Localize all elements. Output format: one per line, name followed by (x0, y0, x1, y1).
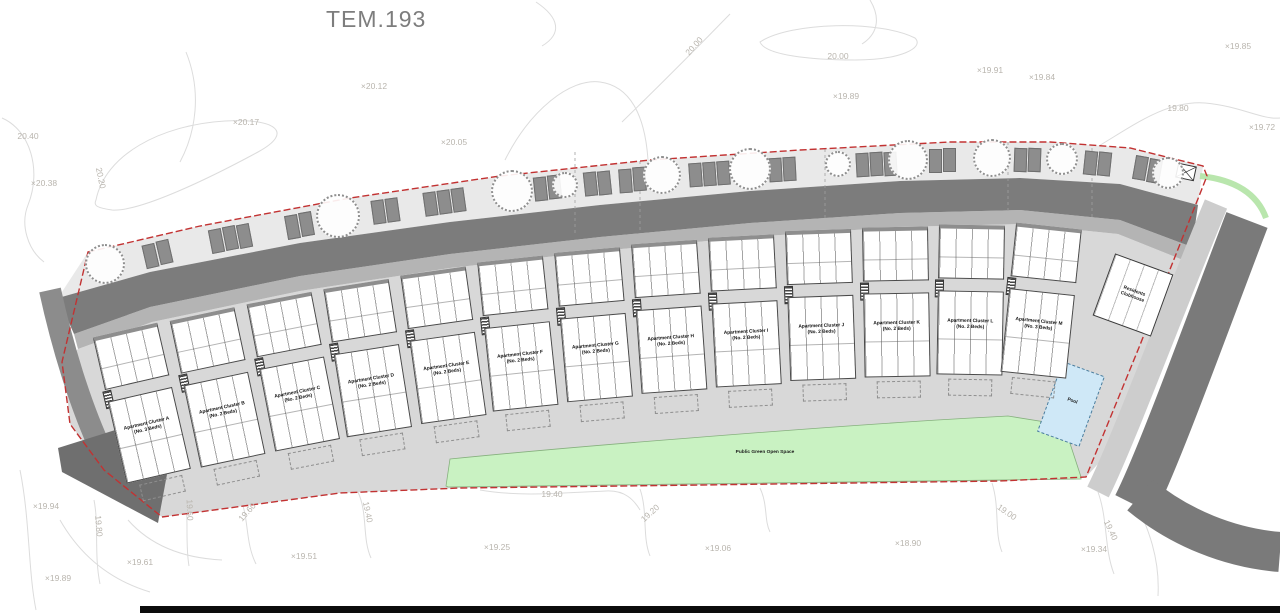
elevation-marker: ×19.94 (33, 501, 59, 511)
parking-bay (855, 153, 869, 178)
parking-bay (436, 189, 452, 215)
cluster-upper-block (631, 240, 701, 298)
parking-bay (702, 162, 717, 187)
parking-bay (1013, 148, 1027, 172)
parking-bay (1082, 150, 1097, 175)
cluster-upper-block (708, 234, 777, 291)
parking-court (1010, 377, 1056, 399)
tree-icon (973, 139, 1011, 177)
tree-icon (825, 151, 851, 177)
parking-bay (532, 176, 547, 201)
parking-bay (1027, 148, 1041, 172)
tree-icon (888, 140, 928, 180)
elevation-marker: ×19.89 (833, 91, 859, 101)
elevation-marker: ×20.05 (441, 137, 467, 147)
parking-court (580, 401, 625, 422)
tree-icon (316, 194, 360, 238)
cluster-upper-block (862, 226, 929, 281)
tree-icon (1152, 157, 1184, 189)
parking-bay (929, 149, 942, 173)
parking-bay (716, 161, 731, 186)
cluster-upper-block (247, 292, 322, 358)
cluster-lower-block (560, 313, 633, 402)
cluster-label: Apartment Cluster L(No. 2 Beds) (938, 318, 1002, 330)
elevation-marker: 20.20 (94, 167, 108, 190)
elevation-marker: 20.00 (827, 51, 848, 61)
elevation-marker: ×19.51 (291, 551, 317, 561)
elevation-marker: ×19.25 (484, 542, 510, 552)
elevation-marker: ×19.85 (1225, 41, 1251, 51)
cluster-lower-block (787, 295, 856, 381)
cluster-lower-block (484, 321, 558, 411)
parking-bay (688, 163, 703, 188)
tree-icon (85, 244, 125, 284)
elevation-marker: ×19.91 (977, 65, 1003, 75)
parking-court (948, 379, 992, 397)
parking-bay (596, 170, 611, 195)
cluster-upper-block (400, 266, 473, 329)
cluster-lower-block (863, 292, 930, 377)
parking-court (654, 394, 699, 414)
cluster-upper-block (477, 256, 548, 317)
elevation-marker: ×19.34 (1081, 544, 1107, 554)
elevation-marker: ×20.17 (233, 117, 259, 127)
elevation-marker: 19.60 (185, 499, 196, 521)
parking-bay (384, 197, 400, 223)
elevation-marker: ×19.84 (1029, 72, 1055, 82)
bottom-bar (140, 606, 1280, 613)
clubhouse-label: Residents Clubhouse (1119, 285, 1146, 304)
tree-icon (729, 148, 771, 190)
parking-bay (582, 171, 597, 196)
parking-bay (1096, 151, 1111, 176)
elevation-marker: 19.00 (995, 502, 1018, 522)
parking-bay (782, 157, 796, 182)
tree-icon (491, 170, 533, 212)
elevation-marker: ×20.38 (31, 178, 57, 188)
cluster-upper-block (938, 224, 1005, 279)
cluster-lower-block (1001, 288, 1075, 378)
elevation-marker: 20.40 (17, 131, 38, 141)
parking-court (728, 389, 773, 408)
parking-bay (618, 169, 633, 194)
elevation-marker: 19.80 (93, 515, 105, 537)
parking-bay (943, 148, 956, 172)
parking-bay (450, 187, 466, 213)
parking-bay (422, 191, 438, 217)
elevation-marker: 20.00 (683, 35, 705, 58)
elevation-marker: ×19.06 (705, 543, 731, 553)
parking-bay (370, 199, 386, 225)
cluster-lower-block (711, 300, 781, 387)
elevation-marker: ×19.61 (127, 557, 153, 567)
cluster-label: Apartment Cluster J(No. 2 Beds) (789, 323, 853, 336)
elevation-marker: ×19.72 (1249, 122, 1275, 132)
elevation-marker: 19.40 (541, 489, 562, 499)
tree-icon (1046, 143, 1078, 175)
elevation-marker: 19.60 (236, 501, 258, 524)
parking-court (802, 383, 847, 402)
elevation-marker: ×18.90 (895, 538, 921, 548)
cluster-upper-block (554, 247, 624, 307)
elevation-marker: ×19.89 (45, 573, 71, 583)
drawing-title: TEM.193 (326, 6, 426, 33)
apartment-cluster-I: Apartment Cluster I(No. 2 Beds) (708, 234, 783, 409)
elevation-marker: 19.80 (1167, 103, 1188, 113)
cluster-upper-block (323, 279, 397, 343)
elevation-marker: 19.40 (1102, 518, 1120, 542)
cluster-label: Apartment Cluster K(No. 2 Beds) (865, 320, 929, 332)
green-open-space-label: Public Green Open Space (722, 450, 808, 456)
cluster-upper-block (1011, 223, 1082, 284)
site-plan-drawing: Apartment Cluster A(No. 3 Beds)Apartment… (0, 0, 1280, 613)
parking-court (877, 381, 921, 399)
apartment-cluster-L: Apartment Cluster L(No. 2 Beds) (936, 224, 1005, 397)
elevation-marker: 19.20 (639, 502, 662, 524)
parking-court (505, 410, 551, 432)
apartment-cluster-J: Apartment Cluster J(No. 2 Beds) (785, 229, 857, 403)
apartment-cluster-H: Apartment Cluster H(No. 2 Beds) (631, 240, 709, 416)
tree-icon (643, 156, 681, 194)
apartment-cluster-K: Apartment Cluster K(No. 2 Beds) (862, 226, 931, 399)
cluster-lower-block (636, 306, 708, 394)
elevation-marker: ×20.12 (361, 81, 387, 91)
elevation-marker: 19.40 (361, 501, 375, 524)
tree-icon (552, 172, 578, 198)
cluster-lower-block (936, 290, 1003, 375)
parking-bay (869, 152, 883, 177)
cluster-upper-block (785, 229, 853, 285)
